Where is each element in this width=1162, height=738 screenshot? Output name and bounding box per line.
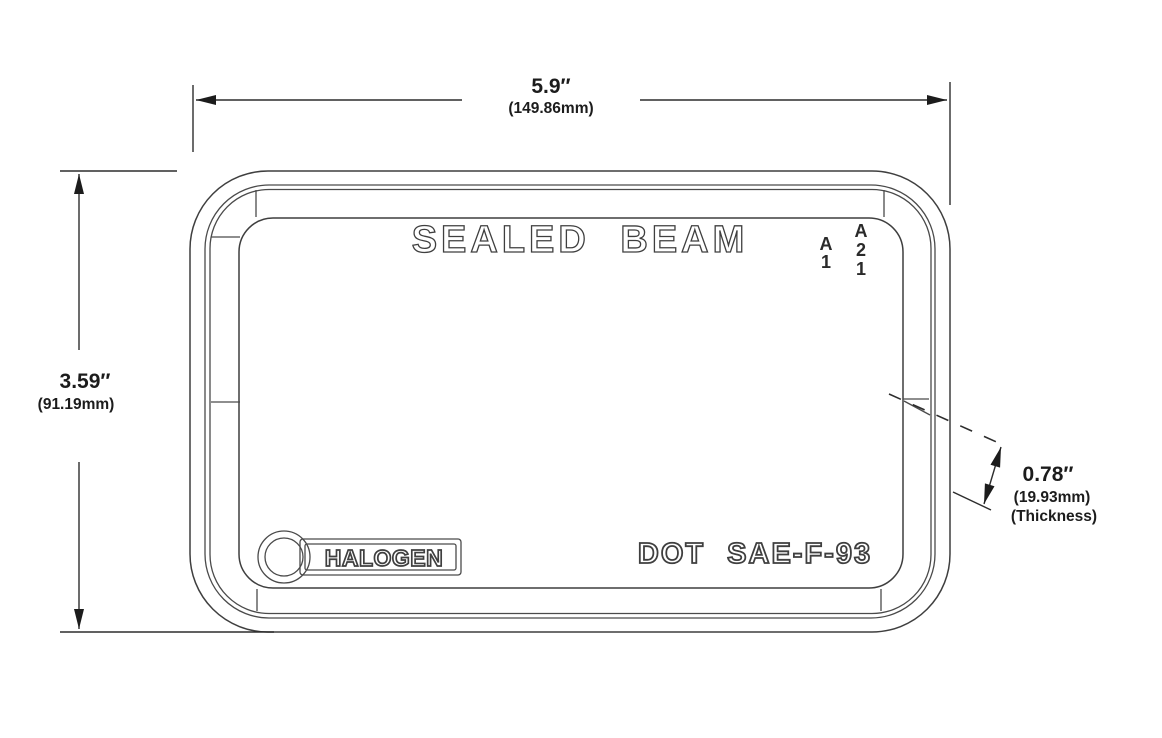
sealed-beam-embossed-text: SEALED BEAM	[412, 219, 749, 261]
halogen-badge: HALOGEN	[258, 531, 461, 583]
drawing-page: SEALED BEAM A 1 A 2 1 HALOGEN DOT SAE-F-…	[0, 0, 1162, 738]
height-metric-label: (91.19mm)	[38, 396, 115, 413]
halogen-ring-inner-icon	[265, 538, 303, 576]
height-inches-label: 3.59″	[60, 370, 111, 393]
thickness-metric-label: (19.93mm)	[1014, 489, 1091, 506]
dot-sae-certification-text: DOT SAE-F-93	[638, 538, 872, 570]
width-metric-label: (149.86mm)	[508, 100, 593, 117]
code-left-char: A	[820, 234, 833, 254]
thickness-dim-arrow	[984, 447, 1001, 504]
code-left-char: 1	[821, 252, 831, 272]
code-left-column: A 1	[820, 234, 833, 272]
halogen-ring-outer-icon	[258, 531, 310, 583]
halogen-embossed-text: HALOGEN	[325, 545, 444, 571]
code-right-char: 1	[856, 259, 866, 279]
code-right-column: A 2 1	[855, 221, 868, 279]
code-right-char: A	[855, 221, 868, 241]
drawing-canvas: SEALED BEAM A 1 A 2 1 HALOGEN DOT SAE-F-…	[0, 0, 1162, 738]
width-inches-label: 5.9″	[531, 75, 570, 98]
code-right-char: 2	[856, 240, 866, 260]
thickness-note-label: (Thickness)	[1011, 508, 1097, 525]
lens-markings: SEALED BEAM A 1 A 2 1 HALOGEN DOT SAE-F-…	[258, 219, 872, 583]
thickness-inches-label: 0.78″	[1023, 463, 1074, 486]
lamp-lens-edge	[239, 218, 903, 588]
thickness-dimension: 0.78″ (19.93mm) (Thickness)	[889, 394, 1097, 525]
